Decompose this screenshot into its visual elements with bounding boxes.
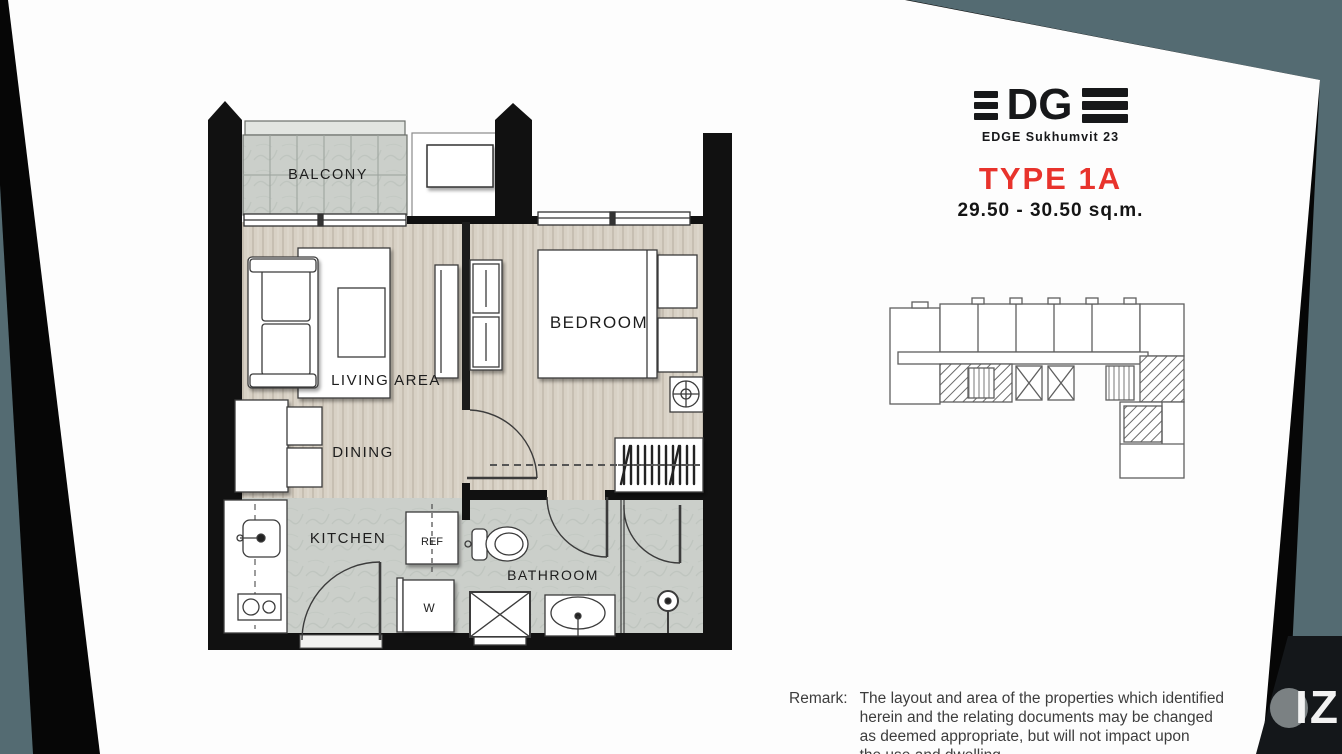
washer-label: W [423, 601, 435, 615]
shaft-box [470, 592, 530, 645]
dining-table [235, 400, 288, 492]
keyplan-stair [968, 368, 994, 398]
bedroom-label: BEDROOM [550, 313, 648, 332]
kitchen-sink [237, 520, 280, 557]
keyplan-corridor [898, 352, 1148, 364]
sliding-wardrobe [470, 260, 502, 370]
nightstand [658, 255, 697, 308]
keyplan-top-units [940, 304, 1140, 352]
logo-dg-letters: DG [1007, 85, 1073, 125]
building-key-plan [882, 294, 1192, 484]
dining-chair [287, 407, 322, 445]
unit-area-range: 29.50 - 30.50 sq.m. [948, 200, 1153, 222]
floorplan-drawing: BALCONY LIVING AREA DINING BEDROOM KITCH… [200, 88, 745, 658]
bathroom-label: BATHROOM [507, 567, 599, 583]
remark-text: The layout and area of the properties wh… [860, 689, 1224, 754]
logo-e-bars-right-icon [1082, 88, 1128, 123]
dining-chair [287, 448, 322, 487]
balcony-railing [245, 121, 405, 135]
keyplan-stair [1106, 366, 1134, 400]
floorplan-sheet: BALCONY LIVING AREA DINING BEDROOM KITCH… [0, 0, 1342, 754]
logo-e-bars-left-icon [974, 91, 998, 120]
stove [238, 594, 281, 620]
living-area-label: LIVING AREA [331, 372, 441, 389]
remark-block: Remark: The layout and area of the prope… [789, 689, 1224, 754]
fridge-label: REF [421, 536, 443, 548]
coffee-table [338, 288, 385, 357]
wall-right [703, 133, 732, 650]
ac-condenser-unit [427, 145, 493, 187]
wall-partition-living-bedroom [462, 222, 470, 410]
dining-label: DINING [332, 444, 394, 461]
remark-line: as deemed appropriate, but will not impa… [860, 727, 1224, 746]
remark-label: Remark: [789, 689, 848, 754]
wall-column-left [208, 101, 242, 345]
kitchen-label: KITCHEN [310, 530, 386, 547]
unit-type-title: TYPE 1A [948, 161, 1153, 197]
tv-cabinet [435, 265, 458, 378]
ac-ledge [412, 133, 497, 217]
balcony-label: BALCONY [288, 167, 368, 183]
project-name: EDGE Sukhumvit 23 [948, 130, 1153, 144]
toilet-icon [465, 527, 528, 561]
wall-bathroom-top [462, 490, 547, 500]
vanity-sink [545, 595, 615, 636]
edge-logo: DG [948, 84, 1153, 126]
watermark-text: IZ [1295, 680, 1340, 734]
nightstand [658, 318, 697, 372]
brand-block: DG EDGE Sukhumvit 23 TYPE 1A 29.50 - 30.… [948, 84, 1153, 222]
sofa [248, 257, 318, 388]
keyplan-top-right-unit [1140, 304, 1184, 356]
wall-column-mid [495, 103, 532, 220]
fan-coil-unit [670, 377, 703, 412]
remark-line: The layout and area of the properties wh… [860, 689, 1224, 708]
remark-line: herein and the relating documents may be… [860, 708, 1224, 727]
entrance-threshold [300, 635, 382, 648]
remark-line: the use and dwelling [860, 746, 1224, 754]
